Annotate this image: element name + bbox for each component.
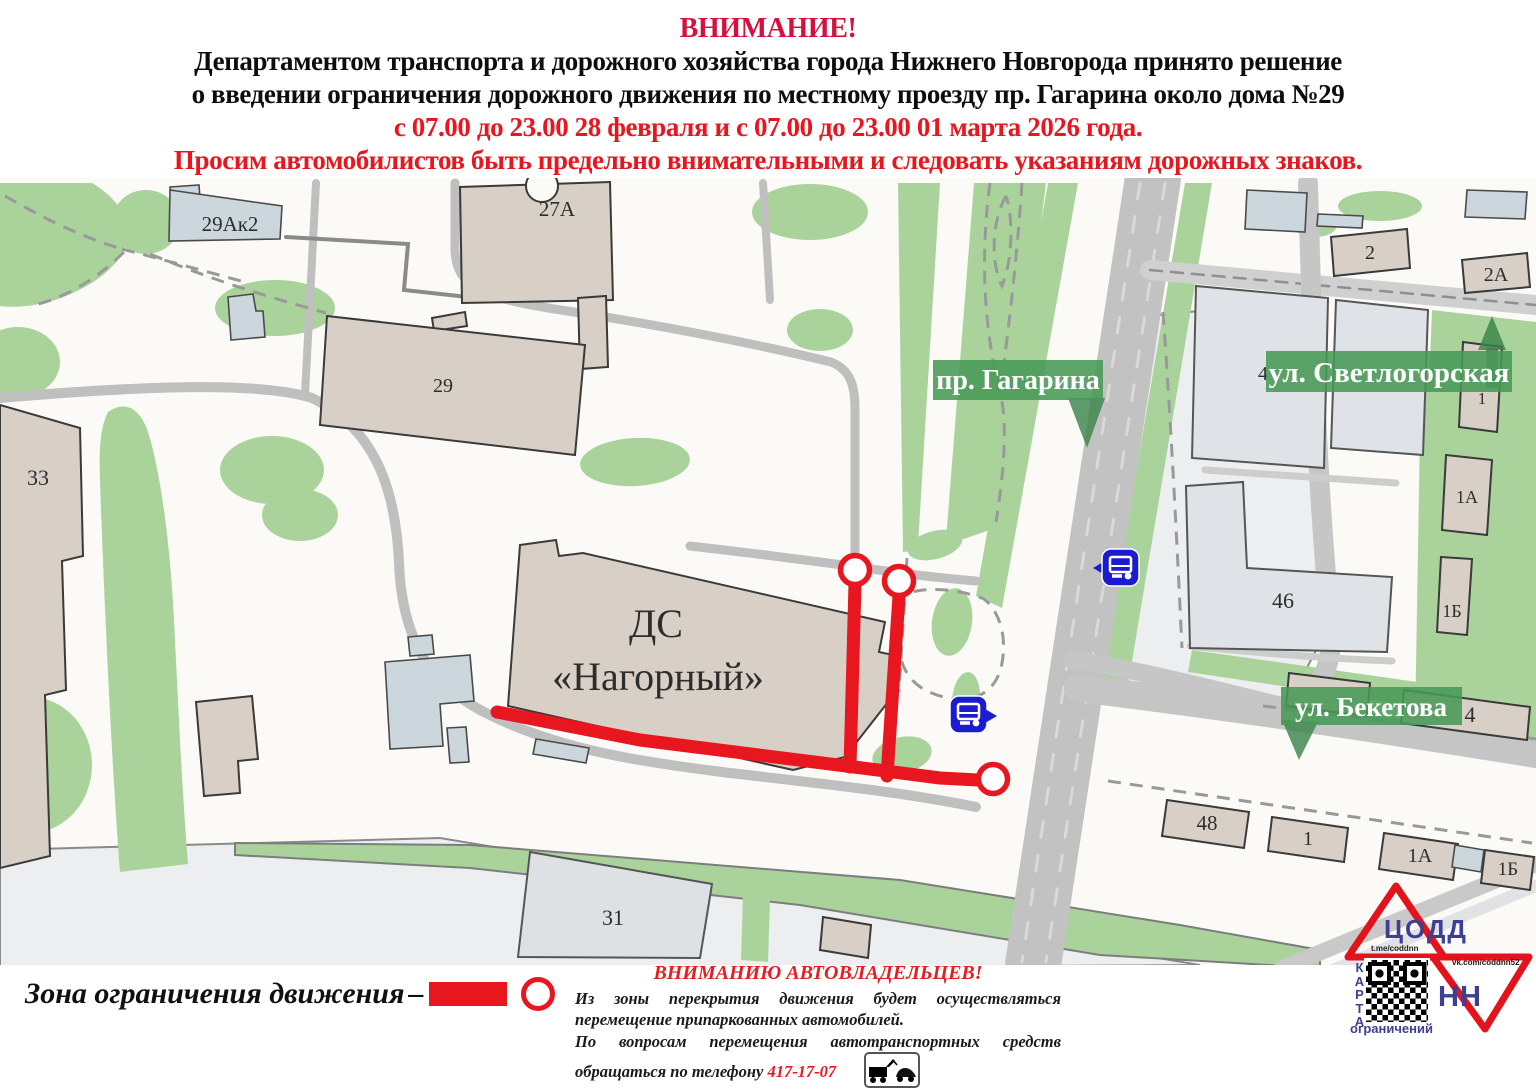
qr-code (1366, 960, 1428, 1022)
restriction-line-swatch (429, 982, 507, 1006)
building-label-1a: 1А (1456, 487, 1478, 507)
building-label-2a: 2А (1484, 264, 1509, 286)
header-warning: Просим автомобилистов быть предельно вни… (0, 144, 1536, 177)
logo-city: НН (1438, 981, 1482, 1014)
building-label-1b: 1Б (1442, 601, 1461, 621)
city-map: 29Ак2 27А 29 33 ДС «Нагорный» 2 2А 4 1 4… (0, 178, 1536, 965)
building-label-4-beketova: 4 (1465, 702, 1476, 727)
tow-truck-icon (864, 1052, 920, 1088)
logo-telegram-link: t.me/coddnn (1371, 944, 1419, 953)
building-label-27a: 27А (539, 197, 576, 221)
logo-restrictions-label: ограничений (1350, 1021, 1433, 1036)
legend: Зона ограничения движения– (25, 970, 555, 1018)
street-label-svetlogorskaya: ул. Светлогорская (1269, 357, 1510, 389)
street-label-beketova: ул. Бекетова (1295, 692, 1447, 722)
header-line1: Департаментом транспорта и дорожного хоз… (0, 45, 1536, 78)
notice-title: ВНИМАНИЮ АВТОВЛАДЕЛЬЦЕВ! (575, 960, 1061, 986)
closure-point-1 (841, 556, 870, 585)
owners-notice: ВНИМАНИЮ АВТОВЛАДЕЛЬЦЕВ! Из зоны перекры… (575, 960, 1061, 1088)
building-label-1-bottom: 1 (1303, 828, 1313, 850)
building-label-2: 2 (1365, 242, 1375, 264)
logo-org-name: ЦОДД (1384, 914, 1484, 945)
building-label-ds-line1: ДС (629, 601, 683, 646)
closure-point-swatch (521, 977, 555, 1011)
closure-point-3 (979, 765, 1008, 794)
header-line2: о введении ограничения дорожного движени… (0, 78, 1536, 111)
legend-dash: – (408, 977, 423, 1011)
building-label-33: 33 (27, 465, 49, 490)
legend-label: Зона ограничения движения (25, 977, 404, 1011)
building-label-1b-bottom: 1Б (1498, 859, 1518, 880)
phone-number: 417-17-07 (767, 1062, 836, 1081)
building-label-29ak2: 29Ак2 (202, 212, 259, 236)
building-label-48: 48 (1197, 811, 1218, 835)
restriction-line-branch-1 (850, 584, 855, 767)
logo-vk-link: vk.com/coddnn52 (1452, 958, 1520, 967)
street-label-gagarina: пр. Гагарина (936, 365, 1100, 396)
building-label-1a-bottom: 1А (1408, 845, 1433, 867)
closure-point-2 (885, 567, 914, 596)
building-label-ds-line2: «Нагорный» (552, 654, 764, 699)
building-label-29: 29 (433, 375, 453, 397)
header-dates: с 07.00 до 23.00 28 февраля и с 07.00 до… (0, 111, 1536, 144)
building-label-31: 31 (602, 905, 624, 930)
header: ВНИМАНИЕ! Департаментом транспорта и дор… (0, 12, 1536, 177)
notice-paragraph-1: Из зоны перекрытия движения будет осущес… (575, 988, 1061, 1031)
poster: ВНИМАНИЕ! Департаментом транспорта и дор… (0, 0, 1536, 1090)
notice-paragraph-2: По вопросам перемещения автотранспортных… (575, 1031, 1061, 1088)
building-label-46: 46 (1272, 588, 1294, 613)
logo-karta-label: КАРТА (1352, 961, 1367, 1029)
header-attention: ВНИМАНИЕ! (0, 12, 1536, 45)
